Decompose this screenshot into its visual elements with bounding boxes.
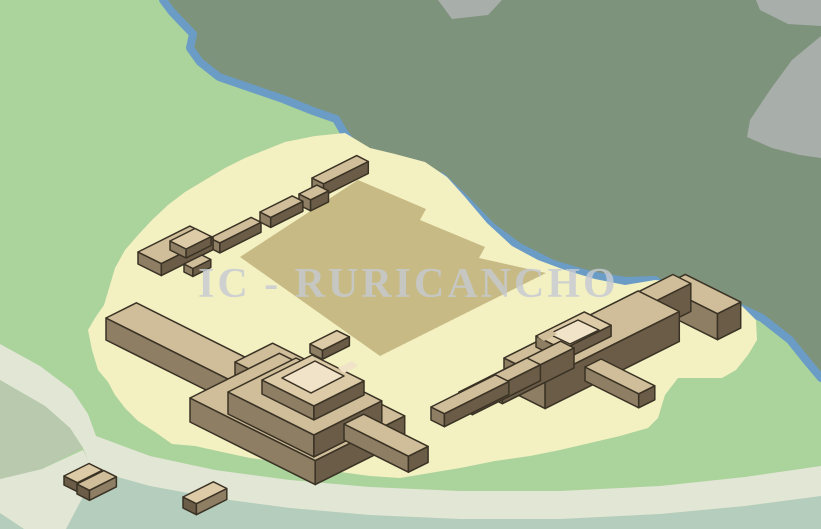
site-map-illustration: IC - RURICANCHO <box>0 0 821 529</box>
watermark-text: IC - RURICANCHO <box>198 261 619 307</box>
